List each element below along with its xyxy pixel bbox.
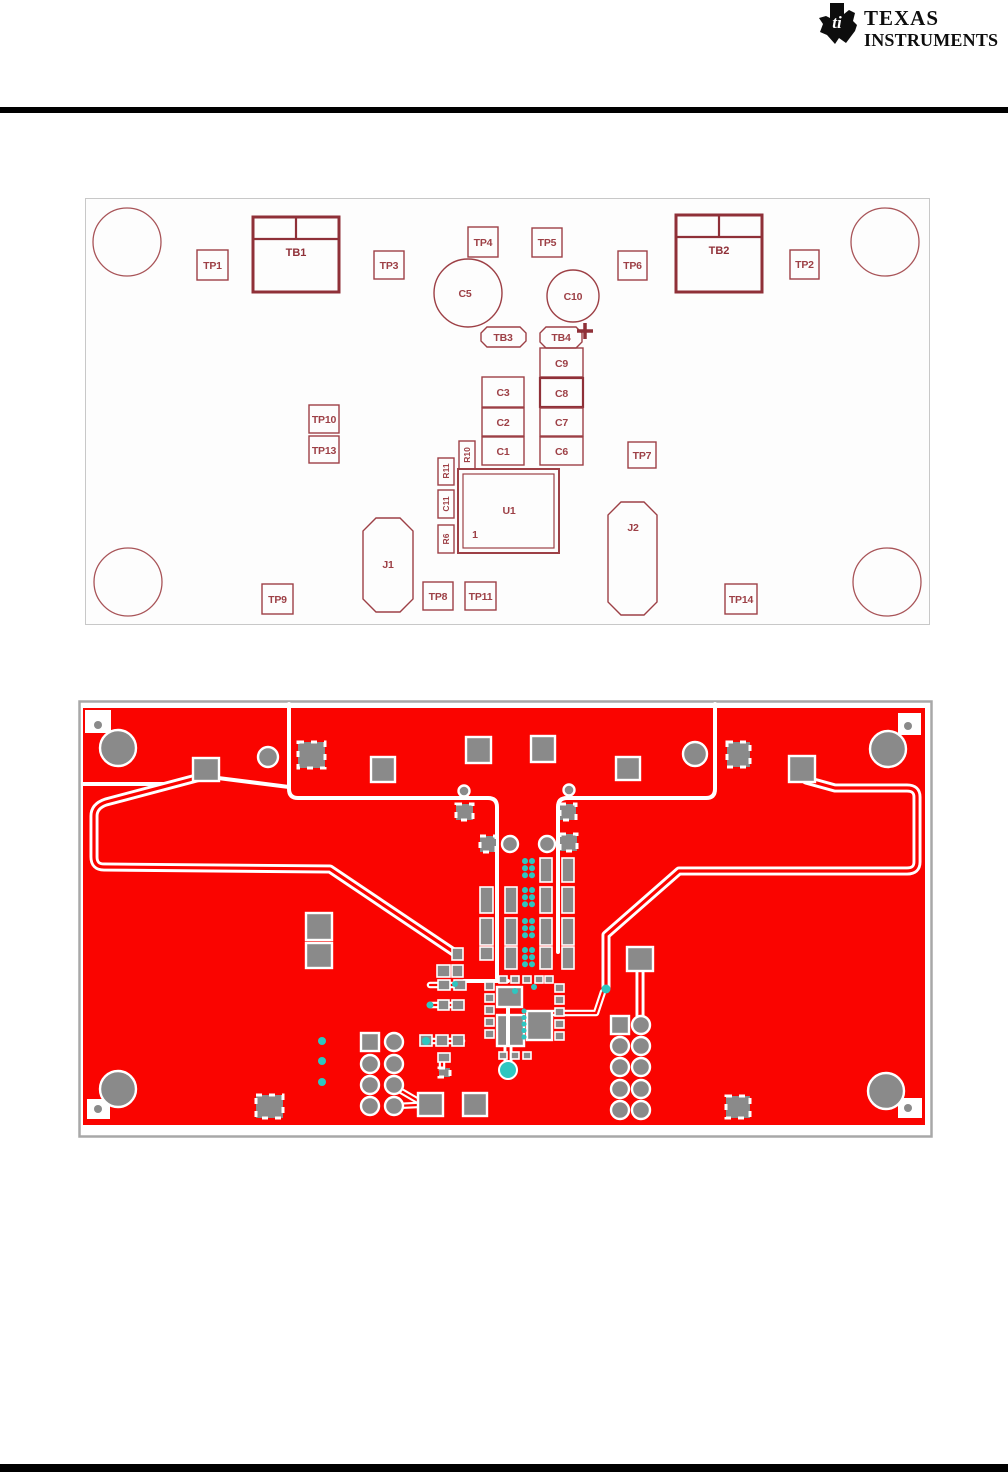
svg-text:J1: J1 bbox=[382, 559, 394, 571]
figure-top-silkscreen: TB1 TB2 TP1 TP3 TP4 TP5 TP6 TP2 TP10 TP1… bbox=[85, 198, 930, 625]
svg-text:C6: C6 bbox=[555, 446, 568, 458]
silkscreen-drawing: TB1 TB2 TP1 TP3 TP4 TP5 TP6 TP2 TP10 TP1… bbox=[85, 198, 930, 625]
svg-text:C3: C3 bbox=[496, 387, 509, 399]
svg-text:C7: C7 bbox=[555, 417, 568, 429]
svg-text:C1: C1 bbox=[496, 446, 509, 458]
logo-brand-bottom: INSTRUMENTS bbox=[864, 31, 998, 49]
svg-text:TP9: TP9 bbox=[268, 594, 287, 606]
svg-text:C9: C9 bbox=[555, 358, 568, 370]
figure-top-copper bbox=[78, 700, 933, 1138]
svg-text:TP8: TP8 bbox=[429, 591, 448, 603]
svg-text:TP7: TP7 bbox=[633, 450, 652, 462]
svg-text:C10: C10 bbox=[564, 291, 583, 303]
svg-text:C5: C5 bbox=[458, 288, 471, 300]
mid-left-pads bbox=[306, 913, 332, 968]
svg-text:TB3: TB3 bbox=[493, 332, 513, 344]
svg-text:TP13: TP13 bbox=[312, 445, 337, 457]
svg-text:TP3: TP3 bbox=[380, 260, 399, 272]
tb1-label: TB1 bbox=[286, 247, 307, 259]
ti-bug-text: ti bbox=[832, 13, 842, 32]
svg-text:TP1: TP1 bbox=[203, 260, 222, 272]
top-rule bbox=[0, 107, 1008, 113]
bottom-rule bbox=[0, 1464, 1008, 1472]
ti-texas-bug-icon: ti bbox=[818, 2, 858, 46]
svg-text:R6: R6 bbox=[441, 533, 451, 544]
copper-drawing bbox=[78, 700, 933, 1138]
svg-text:TP6: TP6 bbox=[623, 260, 642, 272]
svg-text:TP10: TP10 bbox=[312, 414, 337, 426]
svg-text:C8: C8 bbox=[555, 388, 568, 400]
isolated-square-pad bbox=[627, 947, 653, 971]
svg-text:C11: C11 bbox=[441, 496, 451, 511]
svg-text:TP2: TP2 bbox=[795, 259, 814, 271]
ti-logo: ti TEXAS INSTRUMENTS bbox=[818, 2, 1008, 52]
document-page: ti TEXAS INSTRUMENTS TB1 bbox=[0, 0, 1008, 1472]
svg-text:TB4: TB4 bbox=[551, 332, 571, 344]
svg-text:TP5: TP5 bbox=[538, 237, 557, 249]
tb2-label: TB2 bbox=[709, 245, 730, 257]
svg-text:1: 1 bbox=[472, 529, 478, 541]
svg-text:TP11: TP11 bbox=[469, 591, 493, 603]
logo-brand-top: TEXAS bbox=[864, 8, 998, 29]
svg-text:R10: R10 bbox=[462, 447, 472, 463]
svg-text:R11: R11 bbox=[441, 463, 451, 478]
svg-text:TP4: TP4 bbox=[474, 237, 493, 249]
large-via bbox=[499, 1061, 517, 1079]
svg-text:C2: C2 bbox=[496, 417, 509, 429]
svg-text:U1: U1 bbox=[502, 505, 515, 517]
svg-text:TP14: TP14 bbox=[729, 594, 754, 606]
trace-end-via bbox=[602, 985, 611, 994]
svg-text:J2: J2 bbox=[627, 522, 639, 534]
